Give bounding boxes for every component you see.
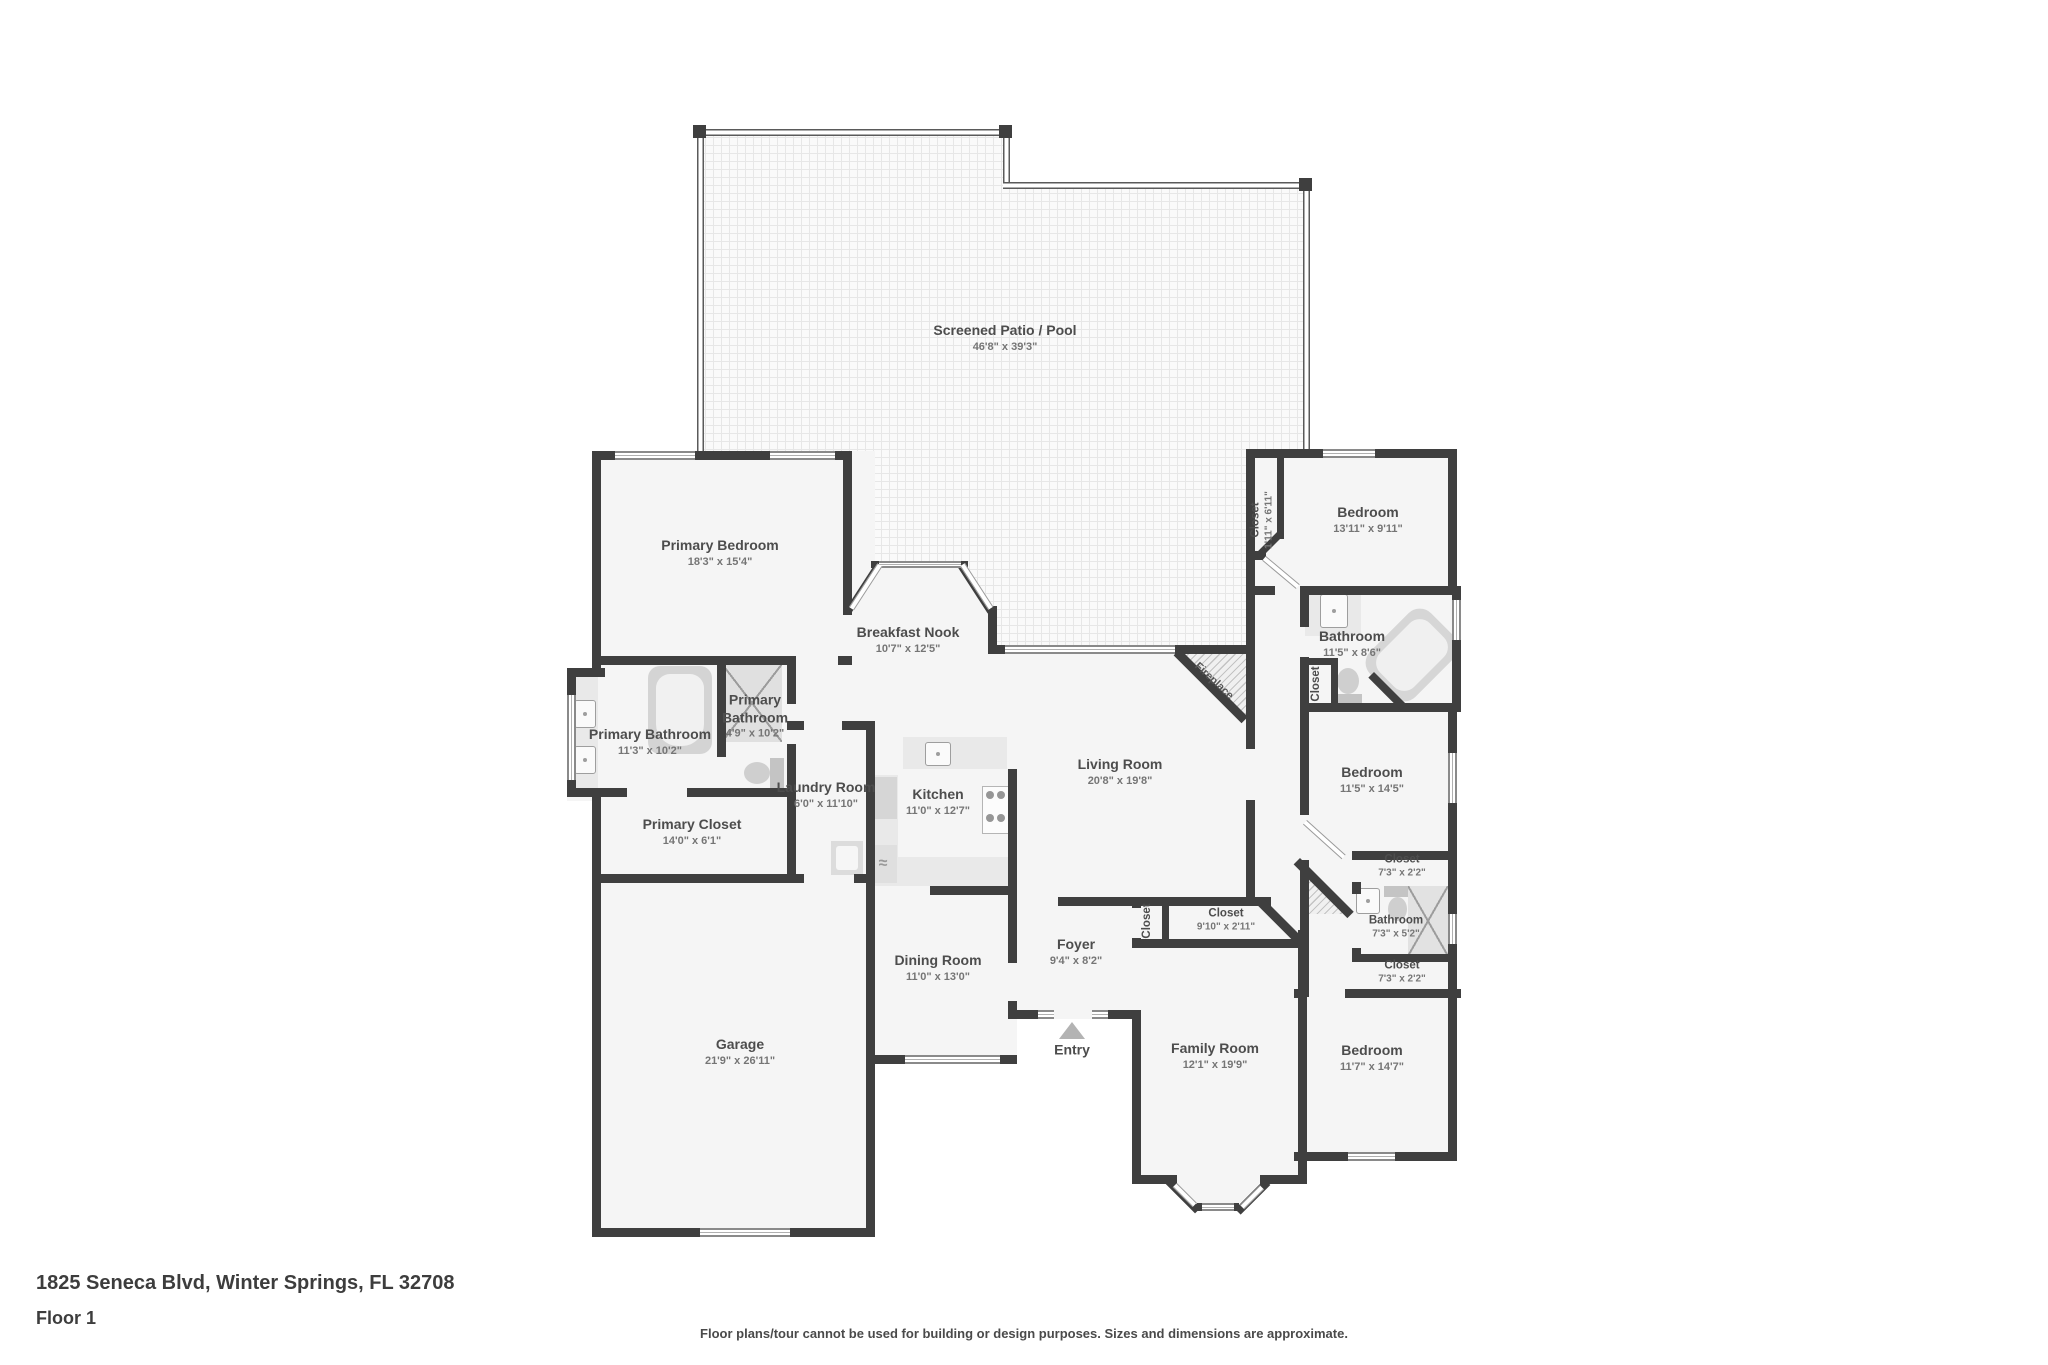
wall (1162, 897, 1169, 943)
entry-label: Entry (1054, 1041, 1090, 1059)
room-label-closet-b: Closet 7'3" x 2'2" (1378, 958, 1426, 985)
wall (592, 451, 601, 677)
room-label-laundry: Laundry Room 6'0" x 11'10" (777, 779, 876, 811)
kitchen-peninsula (903, 737, 1007, 769)
kitchen-counter-bottom (898, 857, 1010, 886)
window (1092, 1010, 1108, 1019)
wall (787, 744, 796, 883)
room-label-closet-a: Closet 7'3" x 2'2" (1378, 852, 1426, 879)
toilet-bowl-icon (744, 762, 770, 784)
wall (1008, 886, 1017, 963)
wall (1132, 1010, 1141, 1184)
wall (592, 874, 804, 883)
laundry-sink-basin-icon (836, 846, 858, 870)
wall (1294, 989, 1305, 998)
burner-icon (997, 791, 1005, 799)
burner-icon (986, 814, 994, 822)
patio-wall (697, 129, 1010, 136)
toilet-tank-icon (1384, 886, 1410, 897)
window (770, 451, 835, 460)
room-label-closet-bath: Closet (1309, 666, 1323, 701)
wall (1300, 586, 1309, 627)
floor-plan: ≈ (0, 0, 2048, 1365)
window (567, 695, 576, 780)
window (1448, 753, 1457, 803)
wall (1352, 882, 1361, 894)
wall (1246, 800, 1255, 906)
sink-icon (1320, 594, 1348, 628)
window (1038, 1010, 1054, 1019)
window (879, 561, 961, 568)
burner-icon (986, 791, 994, 799)
wall (1277, 451, 1284, 539)
wall (567, 788, 627, 797)
kitchen-sink-icon (925, 742, 951, 766)
window (905, 1055, 1000, 1064)
room-label-primary-bedroom: Primary Bedroom 18'3" x 15'4" (661, 537, 778, 569)
wall (592, 788, 601, 1237)
wall (1331, 658, 1338, 710)
window (1348, 1152, 1395, 1161)
wall (843, 451, 852, 615)
room-label-bedroom-se: Bedroom 11'7" x 14'7" (1340, 1042, 1404, 1074)
sink-icon (574, 700, 596, 728)
burner-icon (997, 814, 1005, 822)
room-label-closet-foyer: Closet (1140, 903, 1154, 938)
room-label-patio: Screened Patio / Pool 46'8" x 39'3" (933, 322, 1076, 354)
room-label-bathroom-e: Bathroom 11'5" x 8'6" (1319, 628, 1385, 660)
wall (1300, 586, 1461, 595)
room-label-closet-ne: Closet 1'11" x 6'11" (1248, 491, 1275, 549)
wall (1448, 449, 1457, 595)
patio-wall (697, 129, 704, 460)
window (1323, 449, 1375, 458)
room-label-foyer: Foyer 9'4" x 8'2" (1050, 936, 1102, 968)
window (1448, 914, 1457, 944)
room-label-garage: Garage 21'9" x 26'11" (705, 1036, 775, 1068)
room-label-closet-hall: Closet 9'10" x 2'11" (1197, 906, 1255, 933)
room-label-dining: Dining Room 11'0" x 13'0" (894, 952, 981, 984)
wall (592, 656, 795, 665)
wall (838, 656, 852, 665)
wall (1008, 769, 1017, 895)
sliding-door (1005, 645, 1175, 654)
room-label-breakfast-nook: Breakfast Nook 10'7" x 12'5" (857, 624, 960, 656)
patio-wall (1303, 182, 1310, 458)
room-label-living: Living Room 20'8" x 19'8" (1078, 756, 1163, 788)
entry-marker-icon (1059, 1022, 1085, 1039)
patio-wall (1003, 129, 1010, 189)
wall (1300, 703, 1461, 712)
room-label-family: Family Room 12'1" x 19'9" (1171, 1040, 1259, 1072)
room-label-bedroom-ne: Bedroom 13'11" x 9'11" (1333, 504, 1403, 536)
wall (930, 886, 1012, 895)
wall (1300, 657, 1309, 815)
address-text: 1825 Seneca Blvd, Winter Springs, FL 327… (36, 1272, 455, 1295)
toilet-bowl-icon (1337, 668, 1359, 694)
patio-post (1299, 178, 1312, 191)
room-label-bathroom-se: Bathroom 7'3" x 5'2" (1369, 913, 1423, 940)
room-label-bedroom-e: Bedroom 11'5" x 14'5" (1340, 764, 1404, 796)
room-label-primary-closet: Primary Closet 14'0" x 6'1" (643, 816, 742, 848)
wall (1345, 989, 1461, 998)
wall (1058, 897, 1132, 906)
patio-post (999, 125, 1012, 138)
wall (1132, 939, 1307, 948)
patio-post (693, 125, 706, 138)
wall (1246, 586, 1275, 595)
disclaimer-text: Floor plans/tour cannot be used for buil… (0, 1326, 2048, 1341)
window (700, 1228, 790, 1237)
room-label-primary-bathroom: Primary Bathroom 11'3" x 10'2" (589, 726, 711, 758)
window (1202, 1203, 1234, 1211)
room-label-primary-bathroom2: Primary Bathroom 4'9" x 10'2" (712, 691, 798, 740)
window (615, 451, 695, 460)
patio-wall (1003, 182, 1310, 189)
room-label-kitchen: Kitchen 11'0" x 12'7" (906, 786, 970, 818)
window (1452, 600, 1461, 640)
wall (1300, 860, 1309, 997)
